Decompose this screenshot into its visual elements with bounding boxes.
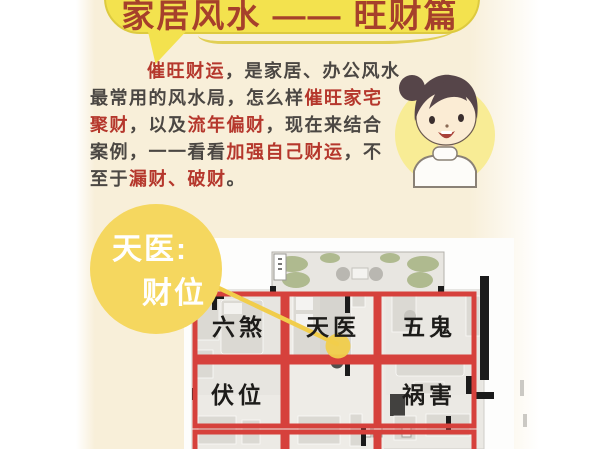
sector-label-huohai: 祸害 xyxy=(396,376,462,410)
callout-line2: 财位 xyxy=(142,268,206,312)
body-text: 。 xyxy=(227,169,247,189)
sector-label-liusha: 六煞 xyxy=(206,308,272,342)
sector-label-fuwei: 伏位 xyxy=(205,376,271,410)
highlight-text: 聚财 xyxy=(90,115,129,135)
body-text: ，现在来结合 xyxy=(266,115,383,135)
intro-line: 聚财，以及流年偏财，现在来结合 xyxy=(90,112,401,139)
body-text: 案例，一一看看 xyxy=(90,142,227,162)
highlight-text: 加强自己财运 xyxy=(227,142,344,162)
sector-label-wugui: 五鬼 xyxy=(396,308,462,342)
intro-line: 案例，一一看看加强自己财运，不 xyxy=(90,139,401,166)
body-text: ，以及 xyxy=(129,115,188,135)
sector-label-tianyi: 天医 xyxy=(300,308,366,342)
intro-paragraph: 催旺财运，是家居、办公风水 最常用的风水局，怎么样催旺家宅 聚财，以及流年偏财，… xyxy=(90,58,401,193)
body-text: ，不 xyxy=(344,142,383,162)
body-text: 至于 xyxy=(90,169,129,189)
tianyi-wealth-callout: 天医: 财位 xyxy=(90,204,222,334)
highlight-text: 催旺家宅 xyxy=(305,88,383,108)
floor-plan xyxy=(180,238,530,449)
intro-line: 催旺财运，是家居、办公风水 xyxy=(90,58,401,85)
woman-with-bun-illustration xyxy=(388,60,500,188)
infographic-page: 家居风水 —— 旺财篇 催旺财运，是家居、办公风水 最常用的风水局，怎么样催旺家… xyxy=(0,0,600,449)
highlight-text: 催旺财运 xyxy=(147,61,225,81)
body-text: 最常用的风水局，怎么样 xyxy=(90,88,305,108)
body-text: ，是家居、办公风水 xyxy=(225,61,401,81)
callout-line1: 天医: xyxy=(112,224,188,268)
highlight-text: 流年偏财 xyxy=(188,115,266,135)
intro-line: 最常用的风水局，怎么样催旺家宅 xyxy=(90,85,401,112)
highlight-text: 漏财、破财 xyxy=(129,169,227,189)
page-title: 家居风水 —— 旺财篇 xyxy=(104,0,476,37)
intro-line: 至于漏财、破财。 xyxy=(90,166,401,193)
